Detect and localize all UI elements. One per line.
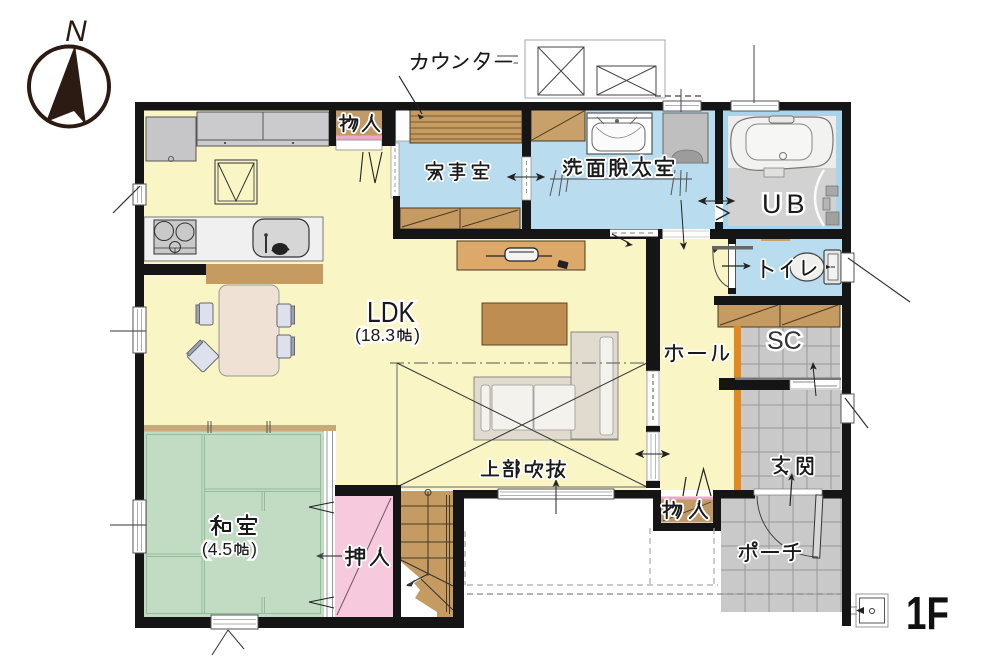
svg-text:1F: 1F [906, 587, 949, 639]
svg-text:): ) [414, 325, 420, 345]
svg-text:SC: SC [767, 327, 802, 355]
svg-text:): ) [251, 539, 257, 559]
svg-text:N: N [65, 15, 87, 48]
svg-text:(18.3: (18.3 [355, 325, 395, 345]
svg-text:(4.5: (4.5 [202, 539, 232, 559]
svg-text:UB: UB [762, 189, 810, 219]
